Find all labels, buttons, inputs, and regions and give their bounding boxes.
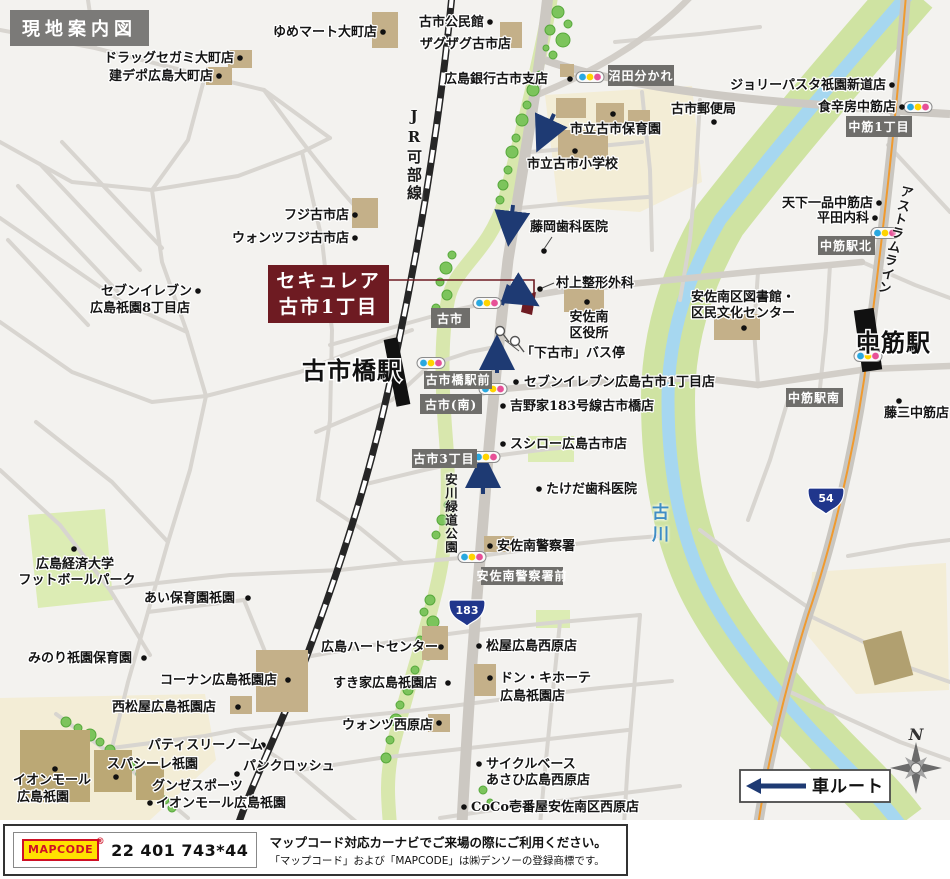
signal-badge: 中筋1丁目: [846, 116, 912, 137]
poi-label: グンゼスポーツ: [152, 778, 243, 794]
signal-badge: 安佐南警察署前: [476, 567, 567, 585]
property-name-line2: 古市1丁目: [279, 294, 378, 320]
signal-badge-label: 安佐南警察署前: [476, 568, 567, 583]
poi-label: 広島銀行古市支店: [444, 71, 548, 87]
nakasuji-station-label: 中筋駅: [856, 328, 931, 357]
poi-label: フジ古市店: [284, 207, 349, 223]
signal-badge-label: 古市: [437, 311, 463, 326]
signal-badge: 古市橋駅前: [424, 371, 492, 389]
signal-badge: 古市3丁目: [412, 449, 477, 468]
poi-label: ウォンツフジ古市店: [232, 230, 349, 246]
property-name-line1: セキュレア: [276, 268, 381, 294]
yasukawa-greenway-label: 安川緑道公園: [441, 473, 460, 554]
poi-label: スシロー広島古市店: [510, 436, 627, 452]
poi-label: ウォンツ西原店: [342, 717, 433, 733]
signal-badge: 古市(南): [420, 394, 482, 414]
poi-label: 広島祇園店: [500, 688, 565, 704]
poi-label: パティスリーノーム: [148, 738, 263, 753]
signal-badge-label: 古市橋駅前: [425, 372, 490, 387]
poi-label: 広島祇園8丁目店: [90, 300, 190, 316]
furuichibashi-station-label: 古市橋駅: [302, 356, 402, 385]
poi-label: 安佐南: [569, 309, 608, 325]
furukawa-river-label: 古川: [646, 503, 671, 547]
poi-label: 松屋広島西原店: [486, 638, 577, 654]
signal-badge-label: 中筋1丁目: [848, 119, 909, 134]
poi-label: ドラッグセガミ大町店: [104, 50, 234, 66]
map-title-badge: 現地案内図: [10, 10, 149, 46]
poi-label: 広島ハートセンター: [321, 639, 438, 655]
mapcode-notes: マップコード対応カーナビでご来場の際にご利用ください。 「マップコード」および「…: [269, 832, 606, 868]
signal-badge-label: 沼田分かれ: [608, 68, 673, 83]
traffic-signal-icon: [417, 358, 445, 369]
poi-label: 村上整形外科: [556, 275, 634, 291]
mapcode-box: MAPCODE® 22 401 743*44: [13, 832, 257, 868]
poi-label: コーナン広島祇園店: [160, 672, 277, 688]
car-route-legend: 車ルート: [740, 770, 890, 802]
signal-badge-label: 古市3丁目: [413, 451, 474, 466]
poi-label: パンクロッシュ: [243, 759, 335, 774]
poi-label: 市立古市保育園: [570, 121, 661, 137]
poi-label: 安佐南区図書館・: [691, 289, 795, 305]
poi-label: 藤三中筋店: [884, 405, 949, 421]
traffic-signal-icon: [576, 72, 604, 83]
poi-label: たけだ歯科医院: [546, 481, 637, 497]
poi-label: 古市郵便局: [671, 101, 736, 117]
property-name-box: セキュレア 古市1丁目: [268, 265, 389, 323]
mapcode-value: 22 401 743*44: [111, 841, 248, 860]
poi-label: イオンモール広島祇園: [156, 795, 286, 811]
traffic-signal-icon: [473, 298, 501, 309]
signal-badge: 古市: [431, 308, 470, 328]
signal-badge-label: 中筋駅南: [788, 390, 840, 405]
signal-badge: 中筋駅北: [818, 236, 875, 255]
poi-label: ドン・キホーテ: [500, 671, 591, 686]
poi-label: イオンモール: [13, 773, 91, 788]
mapcode-footer: MAPCODE® 22 401 743*44 マップコード対応カーナビでご来場の…: [3, 824, 628, 876]
poi-label: 「下古市」バス停: [521, 345, 625, 361]
map-page: 183 54: [0, 0, 950, 879]
poi-label: すき家広島祇園店: [333, 675, 437, 691]
poi-label: 安佐南警察署: [497, 538, 575, 554]
poi-label: 広島経済大学: [36, 556, 114, 572]
poi-label: 古市公民館: [419, 14, 484, 30]
poi-label: みのり祇園保育園: [28, 650, 132, 666]
map-canvas: 183 54: [0, 0, 950, 879]
mapcode-logo: MAPCODE®: [22, 839, 99, 861]
traffic-signal-icon: [458, 552, 486, 563]
poi-label: セブンイレブン: [101, 283, 192, 299]
registered-mark: ®: [96, 834, 106, 850]
route-54-number: 54: [818, 492, 834, 505]
route-183-number: 183: [456, 604, 479, 617]
poi-label: あさひ広島西原店: [486, 772, 590, 788]
poi-label: 市立古市小学校: [527, 156, 619, 172]
poi-label: 吉野家183号線古市橋店: [510, 398, 654, 414]
poi-label: スパシーレ祇園: [107, 756, 198, 772]
poi-label: ジョリーパスタ祇園新道店: [730, 77, 886, 93]
poi-label: 食辛房中筋店: [818, 99, 896, 115]
poi-label: あい保育園祇園: [144, 590, 235, 606]
poi-label: 広島祇園: [17, 789, 69, 805]
compass-north-label: N: [908, 725, 925, 744]
signal-badge: 沼田分かれ: [608, 65, 674, 86]
poi-label: セブンイレブン広島古市1丁目店: [524, 374, 715, 390]
poi-label: 平田内科: [817, 210, 869, 226]
signal-badge-label: 古市(南): [425, 397, 477, 412]
poi-label: ゆめマート大町店: [273, 24, 377, 40]
poi-label: 西松屋広島祇園店: [112, 699, 216, 715]
poi-label: 区民文化センター: [691, 305, 795, 321]
signal-badge-label: 中筋駅北: [820, 238, 872, 253]
poi-label: 天下一品中筋店: [782, 195, 873, 211]
poi-label: CoCo壱番屋安佐南区西原店: [471, 799, 639, 815]
jr-kabe-line-label: JR可部線: [404, 107, 425, 203]
mapcode-logo-text: MAPCODE: [28, 843, 93, 856]
mapcode-note-1: マップコード対応カーナビでご来場の際にご利用ください。: [269, 832, 606, 851]
poi-label: サイクルベース: [486, 757, 576, 772]
mapcode-note-2: 「マップコード」および「MAPCODE」は㈱デンソーの登録商標です。: [269, 853, 606, 868]
poi-label: ザグザグ古市店: [420, 36, 511, 52]
signal-badge: 中筋駅南: [786, 388, 843, 407]
traffic-signal-icon: [904, 102, 932, 113]
poi-label: 藤岡歯科医院: [530, 219, 608, 235]
car-route-label: 車ルート: [812, 776, 884, 797]
poi-label: 建デポ広島大町店: [109, 68, 213, 84]
poi-label: 区役所: [569, 325, 608, 341]
poi-label: フットボールパーク: [18, 572, 135, 588]
